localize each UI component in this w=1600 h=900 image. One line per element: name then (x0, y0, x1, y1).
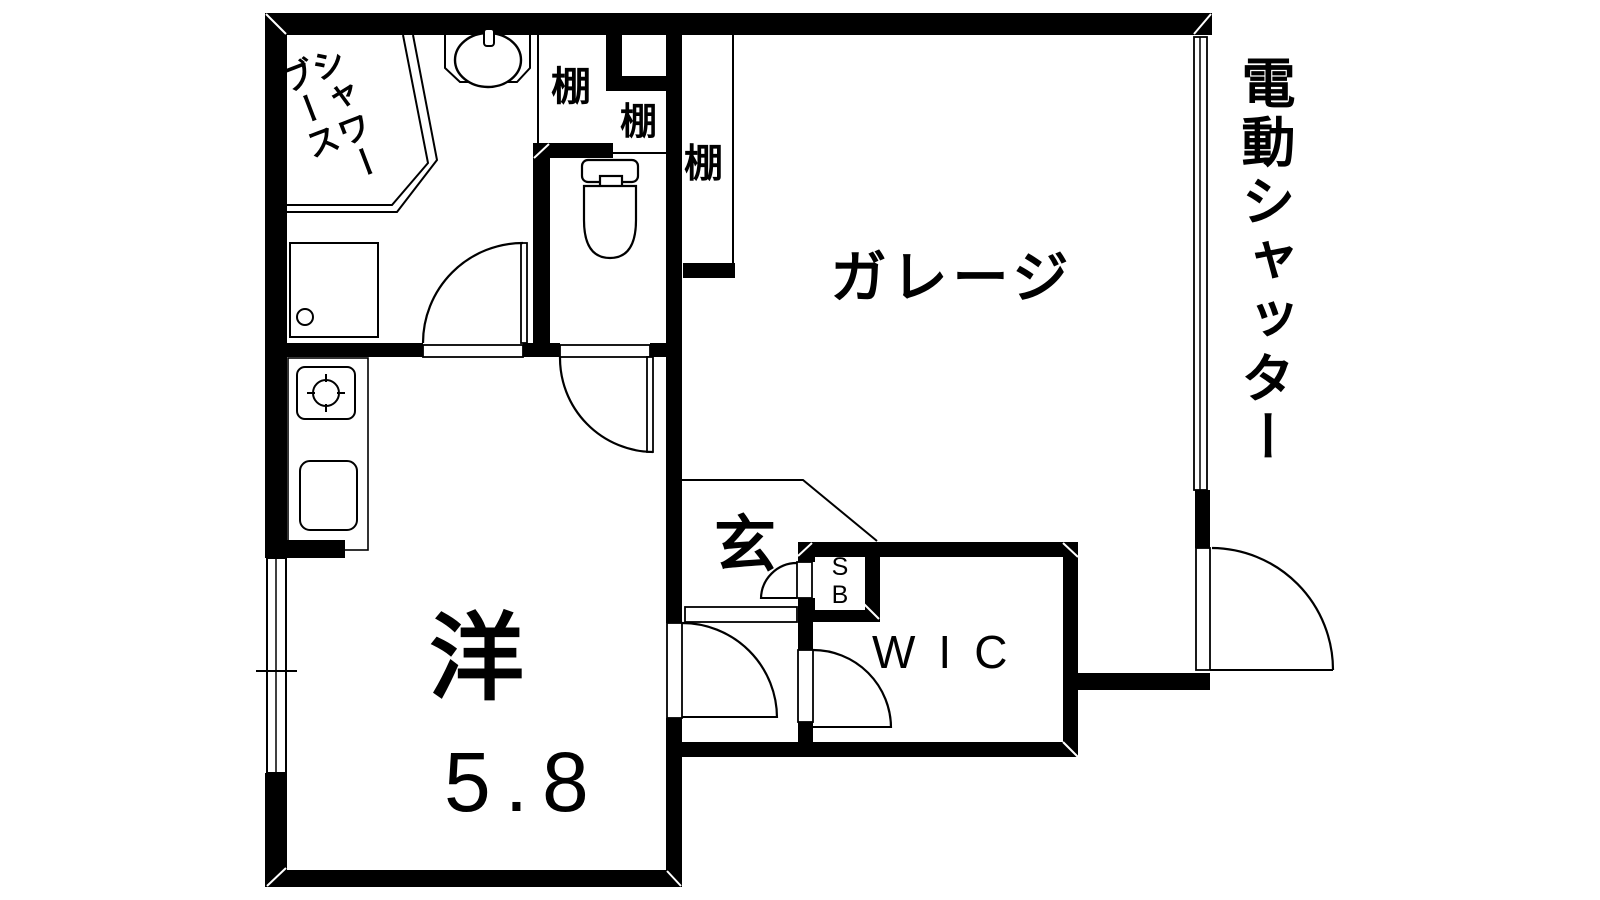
wall-toilet-left (533, 143, 550, 345)
toilet-door-leaf (560, 345, 650, 357)
wall-vestibule-bottom (1078, 673, 1210, 690)
washroom-door-leaf (423, 345, 523, 357)
toilet-door-open-leaf (647, 357, 653, 452)
floor-plan-drawing (0, 0, 1600, 900)
shower-tray-drain (297, 309, 313, 325)
electric-shutter (1194, 37, 1207, 490)
wall-wic-left-mid (798, 622, 813, 650)
floor-plan: シャワー ブース 棚 棚 棚 ガレージ 玄 S B WIC 洋 5.8 電動シャ… (0, 0, 1600, 900)
shoebox-label: S B (815, 551, 865, 610)
stove-burner (313, 380, 339, 406)
shower-tray (290, 243, 378, 337)
shoebox-label-line2: B (815, 581, 865, 609)
wall-bottom (265, 870, 682, 887)
wall-washroom-b (523, 343, 560, 357)
washroom-shelf-label: 棚 (551, 67, 591, 107)
garage-shelf-label: 棚 (684, 145, 723, 184)
walls (265, 13, 1212, 887)
wall-shelf3-stub (683, 263, 735, 278)
wall-wic-right (1063, 542, 1078, 757)
entrance-step-line (682, 480, 877, 541)
entry-door-leaf (1196, 548, 1210, 670)
wic-label: WIC (872, 629, 1030, 675)
hall-door-arc (682, 623, 777, 718)
hall-door-leaf (667, 623, 682, 718)
toilet-shelf-label: 棚 (620, 103, 657, 140)
wall-shutter-cap (1195, 490, 1210, 548)
wall-center-upper (666, 20, 682, 623)
wic-door-leaf (798, 650, 813, 722)
washroom-door-open-leaf (521, 243, 527, 343)
wall-toilet-top (533, 143, 613, 158)
wall-niche-horizontal (606, 76, 667, 91)
wall-washroom-a (287, 343, 423, 357)
shoebox-label-line1: S (815, 553, 865, 581)
kitchen-sink (300, 461, 357, 530)
shower-tray-pan (290, 243, 378, 337)
wall-top (265, 13, 1212, 35)
toilet-door-arc (560, 357, 653, 452)
washbasin-faucet (484, 29, 494, 46)
entrance-label: 玄 (714, 515, 776, 577)
electric-shutter-label: 電動シャッター (1236, 55, 1290, 525)
entrance-step-board (685, 607, 797, 622)
western-room-size-label: 5.8 (444, 740, 603, 824)
wall-center-lower (666, 718, 682, 887)
washroom-door-arc (423, 243, 523, 343)
kitchen (288, 358, 368, 550)
western-room-label: 洋 (429, 612, 524, 707)
wall-wic-left-lower (798, 722, 813, 757)
wall-hall-bottom (682, 742, 1078, 757)
wall-washroom-c (650, 343, 682, 357)
garage-label: ガレージ (820, 250, 1084, 306)
entry-door-arc (1212, 548, 1333, 670)
window (256, 558, 297, 773)
shoebox-door-leaf (797, 562, 812, 598)
washbasin (445, 29, 530, 87)
toilet-bowl (584, 186, 636, 258)
toilet (582, 160, 638, 258)
wall-kitchen-stub (265, 540, 345, 558)
